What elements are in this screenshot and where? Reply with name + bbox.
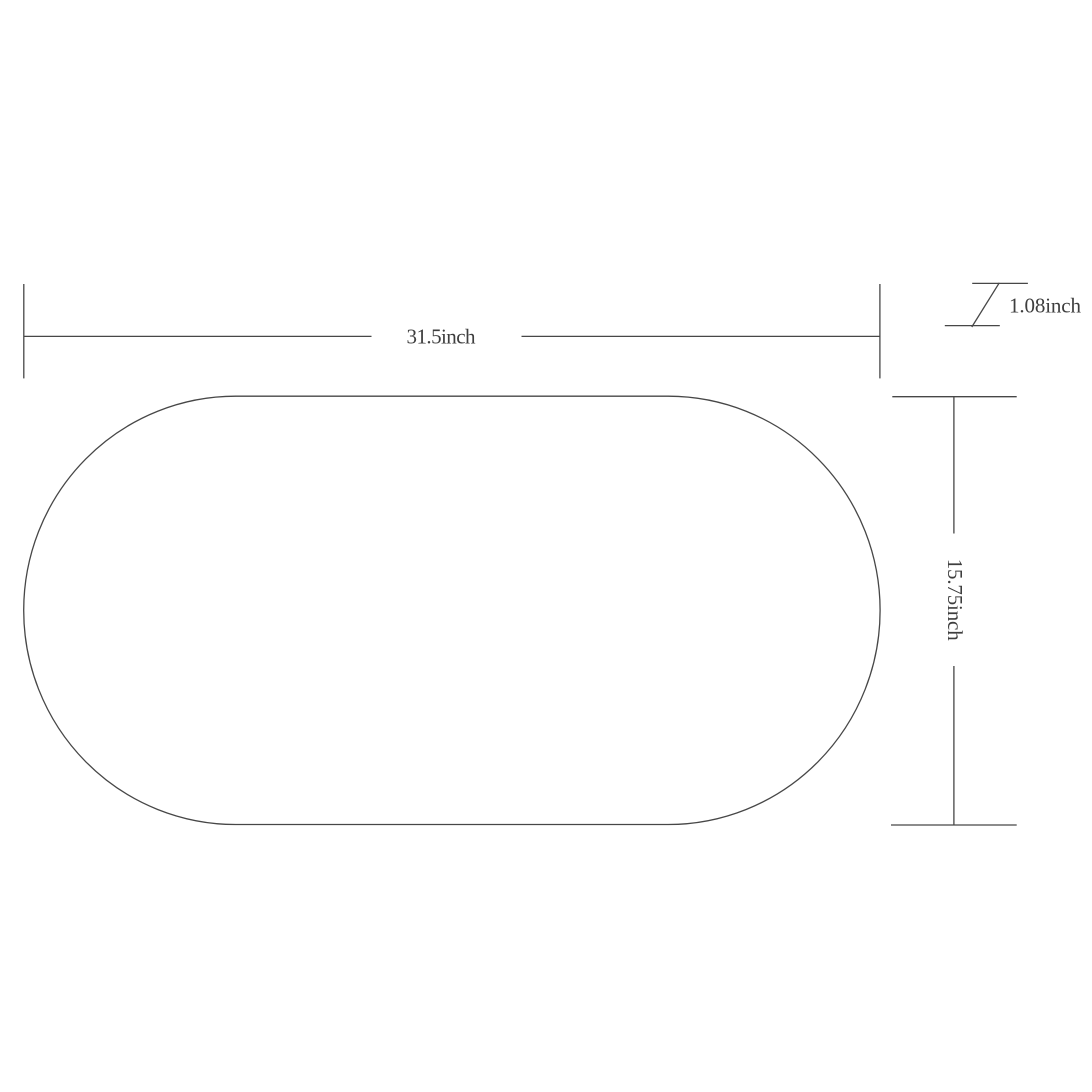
svg-text:31.5inch: 31.5inch — [407, 324, 477, 348]
svg-text:15.75inch: 15.75inch — [943, 559, 967, 642]
svg-text:1.08inch: 1.08inch — [1009, 294, 1082, 318]
